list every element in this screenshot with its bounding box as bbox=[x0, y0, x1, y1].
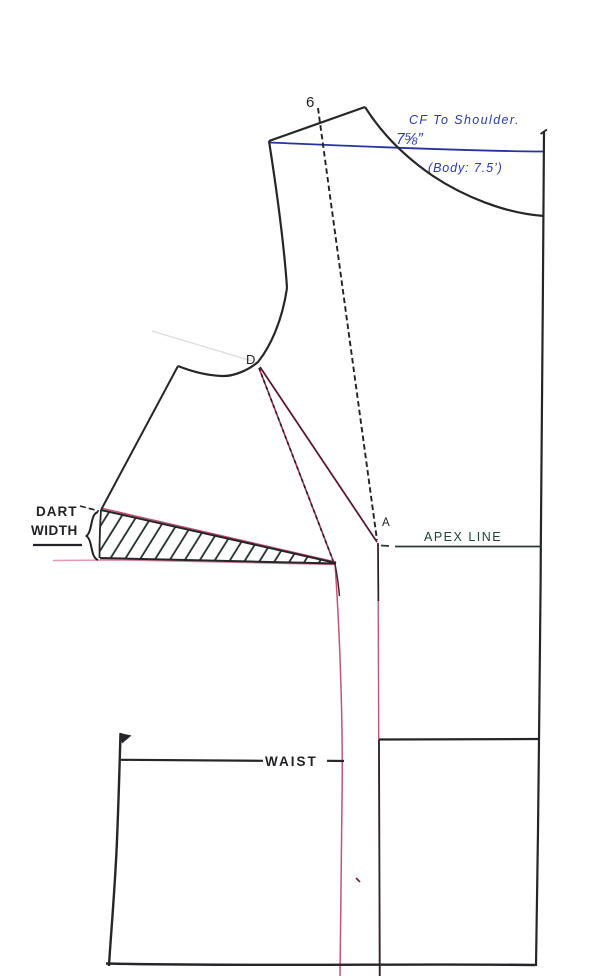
svg-text:APEX LINE: APEX LINE bbox=[424, 530, 502, 544]
svg-text:6: 6 bbox=[306, 94, 314, 111]
svg-text:WIDTH: WIDTH bbox=[31, 523, 78, 538]
svg-text:WAIST: WAIST bbox=[265, 754, 318, 769]
svg-text:A: A bbox=[382, 517, 390, 529]
svg-text:D: D bbox=[246, 352, 255, 367]
svg-text:CF To Shoulder.: CF To Shoulder. bbox=[409, 113, 520, 127]
svg-text:7⅝”: 7⅝” bbox=[396, 131, 424, 148]
svg-text:DART: DART bbox=[36, 504, 78, 519]
svg-text:(Body: 7.5’): (Body: 7.5’) bbox=[428, 161, 503, 175]
